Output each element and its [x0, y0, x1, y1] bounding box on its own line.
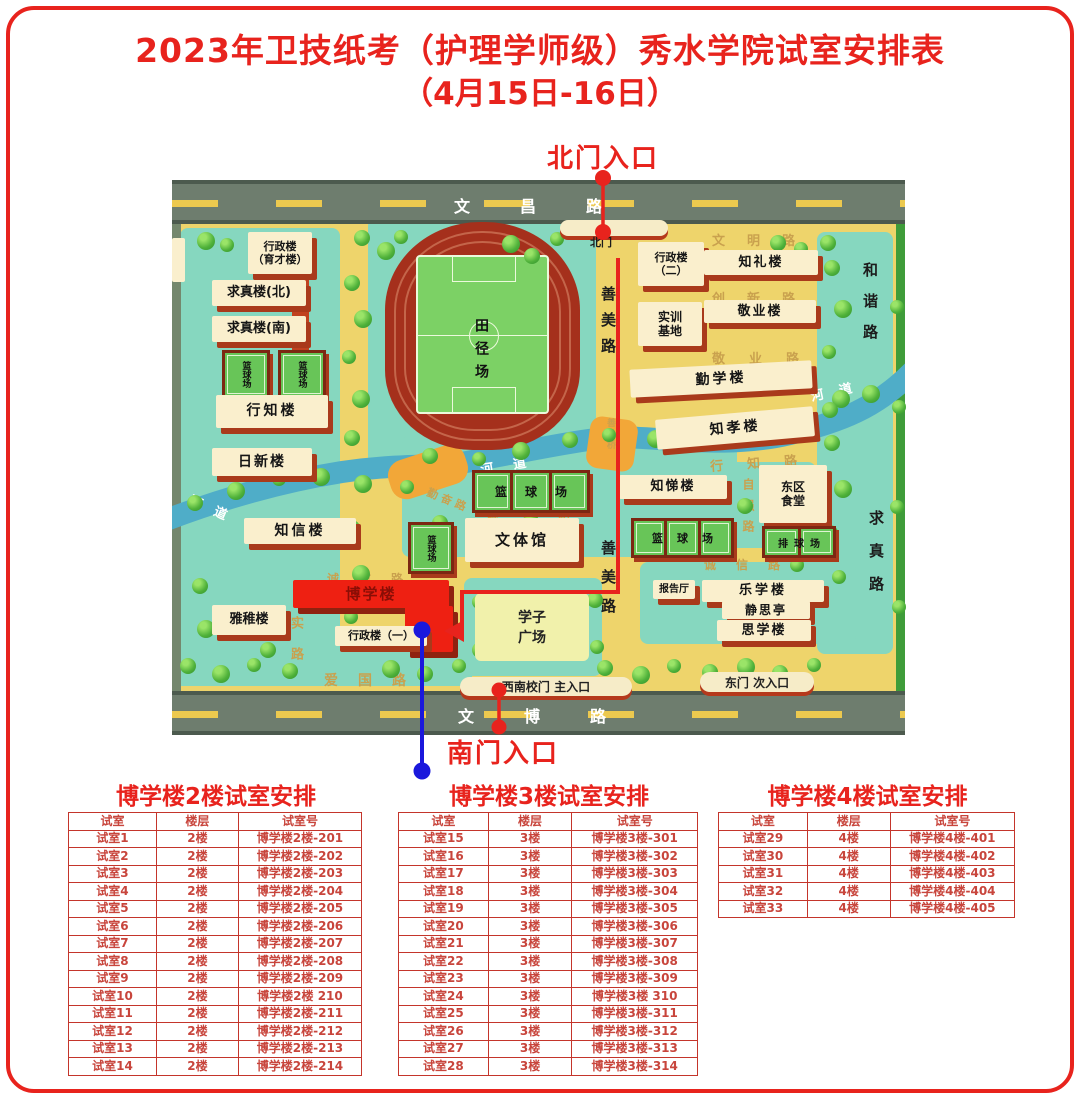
table-cell: 3楼	[488, 830, 572, 848]
col-header-floor: 楼层	[488, 813, 572, 831]
table-cell: 2楼	[156, 883, 238, 901]
tree-icon	[417, 666, 433, 682]
tree-icon	[824, 435, 840, 451]
table-cell: 2楼	[156, 848, 238, 866]
table-cell: 2楼	[156, 1023, 238, 1041]
table-cell: 博学楼2楼-213	[238, 1040, 361, 1058]
table-row: 试室213楼博学楼3楼-307	[399, 935, 698, 953]
tree-icon	[192, 578, 208, 594]
table-cell: 博学楼3楼 310	[572, 988, 698, 1006]
table-row: 试室122楼博学楼2楼-212	[69, 1023, 362, 1041]
table-cell: 2楼	[156, 1058, 238, 1076]
building-boxue-highlight: 博学楼	[293, 580, 449, 608]
table-cell: 2楼	[156, 1005, 238, 1023]
table-row: 试室283楼博学楼3楼-314	[399, 1058, 698, 1076]
tree-icon	[602, 428, 616, 442]
table-row: 试室102楼博学楼2楼 210	[69, 988, 362, 1006]
table-row: 试室163楼博学楼3楼-302	[399, 848, 698, 866]
table-cell: 博学楼3楼-311	[572, 1005, 698, 1023]
table-cell: 博学楼4楼-403	[890, 865, 1014, 883]
tree-icon	[212, 665, 230, 683]
tree-icon	[524, 248, 540, 264]
volleyball-court: 排球场	[762, 526, 836, 558]
col-header-room: 试室	[719, 813, 808, 831]
table-cell: 4楼	[807, 900, 890, 918]
table-title-floor4: 博学楼4楼试室安排	[720, 777, 1015, 811]
tree-icon	[512, 442, 530, 460]
south-entrance-label: 南门入口	[443, 733, 563, 770]
table-cell: 试室17	[399, 865, 489, 883]
table-cell: 3楼	[488, 953, 572, 971]
tree-icon	[834, 480, 852, 498]
basketball-courts: 篮球场	[472, 470, 590, 513]
tree-icon	[502, 235, 520, 253]
table-cell: 试室16	[399, 848, 489, 866]
table-cell: 4楼	[807, 830, 890, 848]
table-row: 试室203楼博学楼3楼-306	[399, 918, 698, 936]
table-cell: 2楼	[156, 935, 238, 953]
table-cell: 试室9	[69, 970, 157, 988]
table-cell: 博学楼2楼-208	[238, 953, 361, 971]
table-cell: 3楼	[488, 935, 572, 953]
tree-icon	[667, 659, 681, 673]
table-cell: 试室30	[719, 848, 808, 866]
col-header-roomno: 试室号	[238, 813, 361, 831]
table-cell: 博学楼4楼-404	[890, 883, 1014, 901]
tree-icon	[227, 482, 245, 500]
building-yucai: 行政楼 （育才楼）	[248, 232, 312, 274]
court-label: 篮球场	[225, 353, 267, 396]
east-gate: 东门 次入口	[700, 672, 814, 692]
poster-page: { "title": { "line1": "2023年卫技纸考（护理学师级）秀…	[0, 0, 1080, 1099]
table-title-floor3: 博学楼3楼试室安排	[400, 777, 698, 811]
table-cell: 博学楼4楼-401	[890, 830, 1014, 848]
basketball-courts-east: 篮球场	[631, 518, 734, 558]
tree-icon	[824, 260, 840, 276]
tree-icon	[790, 558, 804, 572]
exam-room-table-floor4: 试室 楼层 试室号 试室294楼博学楼4楼-401试室304楼博学楼4楼-402…	[718, 812, 1015, 918]
tree-icon	[187, 495, 203, 511]
building-sixue: 思学楼	[717, 620, 811, 641]
table-cell: 2楼	[156, 970, 238, 988]
table-cell: 2楼	[156, 865, 238, 883]
table-cell: 试室5	[69, 900, 157, 918]
table-row: 试室223楼博学楼3楼-308	[399, 953, 698, 971]
table-cell: 博学楼2楼-207	[238, 935, 361, 953]
north-entrance-label: 北门入口	[543, 138, 663, 175]
table-row: 试室294楼博学楼4楼-401	[719, 830, 1015, 848]
tree-icon	[180, 658, 196, 674]
table-row: 试室42楼博学楼2楼-204	[69, 883, 362, 901]
table-row: 试室334楼博学楼4楼-405	[719, 900, 1015, 918]
tree-icon	[452, 659, 466, 673]
tree-icon	[400, 480, 414, 494]
basketball-court: 篮球场	[222, 350, 270, 399]
table-cell: 试室14	[69, 1058, 157, 1076]
tree-icon	[822, 345, 836, 359]
road-label-qiuzhen: 求真路	[866, 510, 887, 609]
table-cell: 博学楼3楼-312	[572, 1023, 698, 1041]
table-cell: 试室11	[69, 1005, 157, 1023]
table-cell: 3楼	[488, 918, 572, 936]
table-cell: 4楼	[807, 848, 890, 866]
tree-icon	[590, 640, 604, 654]
tree-icon	[632, 666, 650, 684]
table-row: 试室52楼博学楼2楼-205	[69, 900, 362, 918]
xuezi-plaza: 学子 广场	[475, 593, 589, 661]
court-label: 篮球场	[281, 353, 323, 396]
table-row: 试室142楼博学楼2楼-214	[69, 1058, 362, 1076]
building-zhili: 知礼楼	[704, 250, 818, 275]
building-baogaoting: 报告厅	[653, 580, 695, 599]
table-cell: 2楼	[156, 830, 238, 848]
table-row: 试室132楼博学楼2楼-213	[69, 1040, 362, 1058]
table-row: 试室314楼博学楼4楼-403	[719, 865, 1015, 883]
table-cell: 博学楼3楼-309	[572, 970, 698, 988]
road-label-aiguo: 爱国路	[324, 670, 426, 690]
table-cell: 试室15	[399, 830, 489, 848]
table-cell: 博学楼3楼-302	[572, 848, 698, 866]
table-cell: 试室8	[69, 953, 157, 971]
table-cell: 试室12	[69, 1023, 157, 1041]
table-cell: 博学楼2楼-202	[238, 848, 361, 866]
table-title-floor2: 博学楼2楼试室安排	[70, 777, 362, 811]
tree-icon	[832, 570, 846, 584]
table-cell: 博学楼2楼-209	[238, 970, 361, 988]
table-row: 试室324楼博学楼4楼-404	[719, 883, 1015, 901]
building-zhiti: 知悌楼	[619, 475, 727, 499]
tree-icon	[247, 658, 261, 672]
table-cell: 试室22	[399, 953, 489, 971]
building-jingsiting: 静思亭	[722, 601, 810, 619]
southwest-gate: 西南校门 主入口	[460, 677, 632, 696]
tree-icon	[344, 430, 360, 446]
table-cell: 博学楼3楼-303	[572, 865, 698, 883]
tree-icon	[260, 642, 276, 658]
road-label-shanmei-lower: 善美路	[598, 540, 619, 627]
table-row: 试室32楼博学楼2楼-203	[69, 865, 362, 883]
table-cell: 3楼	[488, 865, 572, 883]
table-cell: 试室25	[399, 1005, 489, 1023]
building-xingzheng2: 行政楼 （二）	[638, 242, 704, 286]
table-row: 试室92楼博学楼2楼-209	[69, 970, 362, 988]
road-label-wenbo: 文博路	[458, 703, 656, 727]
table-cell: 试室1	[69, 830, 157, 848]
tree-icon	[820, 235, 836, 251]
building-dongqu: 东区 食堂	[759, 465, 827, 523]
table-cell: 试室26	[399, 1023, 489, 1041]
road-label-hexie: 和谐路	[860, 262, 881, 355]
road-label-chengxin-east: 诚信路	[704, 556, 800, 573]
table-cell: 试室18	[399, 883, 489, 901]
table-cell: 2楼	[156, 988, 238, 1006]
building-shixun: 实训 基地	[638, 302, 702, 346]
tree-icon	[890, 500, 904, 514]
table-row: 试室273楼博学楼3楼-313	[399, 1040, 698, 1058]
table-row: 试室233楼博学楼3楼-309	[399, 970, 698, 988]
table-cell: 3楼	[488, 970, 572, 988]
tree-icon	[890, 300, 904, 314]
table-header-row: 试室 楼层 试室号	[399, 813, 698, 831]
table-cell: 博学楼2楼-214	[238, 1058, 361, 1076]
tree-icon	[770, 235, 786, 251]
table-cell: 3楼	[488, 848, 572, 866]
tree-icon	[282, 663, 298, 679]
table-cell: 3楼	[488, 900, 572, 918]
table-row: 试室72楼博学楼2楼-207	[69, 935, 362, 953]
table-row: 试室183楼博学楼3楼-304	[399, 883, 698, 901]
table-row: 试室304楼博学楼4楼-402	[719, 848, 1015, 866]
table-cell: 博学楼2楼 210	[238, 988, 361, 1006]
table-cell: 2楼	[156, 918, 238, 936]
table-cell: 博学楼2楼-206	[238, 918, 361, 936]
court-label: 排球场	[765, 529, 833, 555]
north-gate-pill	[560, 220, 668, 236]
table-cell: 试室29	[719, 830, 808, 848]
building-jingye: 敬业楼	[704, 300, 816, 323]
table-cell: 试室21	[399, 935, 489, 953]
court-label: 篮球场	[634, 521, 731, 555]
table-cell: 试室4	[69, 883, 157, 901]
poster-subtitle: （4月15日-16日）	[0, 68, 1080, 113]
tree-icon	[344, 275, 360, 291]
table-cell: 博学楼2楼-212	[238, 1023, 361, 1041]
table-cell: 博学楼4楼-405	[890, 900, 1014, 918]
building-xingzhi: 行知楼	[216, 395, 328, 428]
tree-icon	[354, 310, 372, 328]
table-row: 试室243楼博学楼3楼 310	[399, 988, 698, 1006]
table-row: 试室12楼博学楼2楼-201	[69, 830, 362, 848]
exam-room-table-floor3: 试室 楼层 试室号 试室153楼博学楼3楼-301试室163楼博学楼3楼-302…	[398, 812, 698, 1076]
tree-icon	[394, 230, 408, 244]
col-header-room: 试室	[69, 813, 157, 831]
building-qiuzhen-north: 求真楼(北)	[212, 280, 306, 306]
tree-icon	[562, 432, 578, 448]
tree-icon	[892, 600, 906, 614]
table-cell: 试室28	[399, 1058, 489, 1076]
table-cell: 博学楼3楼-301	[572, 830, 698, 848]
table-cell: 博学楼2楼-204	[238, 883, 361, 901]
table-cell: 试室32	[719, 883, 808, 901]
tree-icon	[220, 238, 234, 252]
table-cell: 3楼	[488, 1058, 572, 1076]
tree-icon	[377, 242, 395, 260]
campus-map: 文昌路 文博路 文明路 创新路 敬业路 和谐路 求真路 善美路 善美路 自强路 …	[172, 180, 905, 735]
building-xingzheng1: 行政楼（一）	[335, 626, 427, 646]
table-cell: 博学楼2楼-211	[238, 1005, 361, 1023]
table-cell: 试室6	[69, 918, 157, 936]
exam-room-table-floor2: 试室 楼层 试室号 试室12楼博学楼2楼-201试室22楼博学楼2楼-202试室…	[68, 812, 362, 1076]
building-lexue: 乐学楼	[702, 580, 824, 602]
col-header-floor: 楼层	[156, 813, 238, 831]
table-cell: 博学楼2楼-205	[238, 900, 361, 918]
table-row: 试室82楼博学楼2楼-208	[69, 953, 362, 971]
table-cell: 博学楼3楼-313	[572, 1040, 698, 1058]
col-header-roomno: 试室号	[572, 813, 698, 831]
tree-icon	[862, 385, 880, 403]
table-section-floor3: 试室 楼层 试室号 试室153楼博学楼3楼-301试室163楼博学楼3楼-302…	[398, 812, 698, 1076]
building-zhixin: 知信楼	[244, 518, 356, 544]
table-cell: 2楼	[156, 953, 238, 971]
track-label: 田径场	[471, 318, 491, 387]
table-cell: 试室27	[399, 1040, 489, 1058]
table-cell: 3楼	[488, 1040, 572, 1058]
table-cell: 博学楼4楼-402	[890, 848, 1014, 866]
basketball-court: 篮球场	[278, 350, 326, 399]
north-gate-label: 北门	[590, 234, 612, 250]
table-row: 试室22楼博学楼2楼-202	[69, 848, 362, 866]
tree-icon	[382, 660, 400, 678]
tree-icon	[197, 232, 215, 250]
table-cell: 3楼	[488, 883, 572, 901]
building-wentiguan: 文体馆	[465, 518, 579, 562]
table-cell: 2楼	[156, 900, 238, 918]
table-cell: 试室10	[69, 988, 157, 1006]
field-box	[452, 257, 516, 282]
court-label: 篮球场	[475, 473, 587, 510]
table-cell: 博学楼2楼-203	[238, 865, 361, 883]
table-cell: 博学楼3楼-314	[572, 1058, 698, 1076]
tree-icon	[344, 610, 358, 624]
table-cell: 试室2	[69, 848, 157, 866]
table-cell: 试室19	[399, 900, 489, 918]
table-row: 试室193楼博学楼3楼-305	[399, 900, 698, 918]
building-yazhi: 雅稚楼	[212, 605, 286, 635]
tree-icon	[834, 300, 852, 318]
field-box	[452, 387, 516, 412]
tree-icon	[312, 468, 330, 486]
table-cell: 博学楼3楼-307	[572, 935, 698, 953]
table-cell: 博学楼3楼-304	[572, 883, 698, 901]
table-cell: 博学楼3楼-308	[572, 953, 698, 971]
tree-icon	[354, 475, 372, 493]
table-cell: 博学楼3楼-305	[572, 900, 698, 918]
poster-title: 2023年卫技纸考（护理学师级）秀水学院试室安排表	[0, 24, 1080, 72]
table-section-floor4: 试室 楼层 试室号 试室294楼博学楼4楼-401试室304楼博学楼4楼-402…	[718, 812, 1015, 918]
building-fragment	[172, 238, 185, 282]
table-cell: 试室7	[69, 935, 157, 953]
table-cell: 试室3	[69, 865, 157, 883]
table-row: 试室173楼博学楼3楼-303	[399, 865, 698, 883]
tree-icon	[892, 400, 906, 414]
tree-icon	[422, 448, 438, 464]
court-label: 篮球场	[411, 525, 451, 571]
road-label-shanmei-upper: 善美路	[598, 286, 619, 364]
tree-icon	[807, 658, 821, 672]
table-row: 试室62楼博学楼2楼-206	[69, 918, 362, 936]
tree-icon	[587, 592, 603, 608]
table-cell: 试室23	[399, 970, 489, 988]
tree-icon	[342, 350, 356, 364]
tree-icon	[597, 660, 613, 676]
table-cell: 试室33	[719, 900, 808, 918]
table-row: 试室153楼博学楼3楼-301	[399, 830, 698, 848]
table-cell: 试室31	[719, 865, 808, 883]
tree-icon	[822, 402, 838, 418]
table-cell: 3楼	[488, 1005, 572, 1023]
table-section-floor2: 试室 楼层 试室号 试室12楼博学楼2楼-201试室22楼博学楼2楼-202试室…	[68, 812, 362, 1076]
road-label-wenchang: 文昌路	[454, 193, 652, 217]
basketball-court: 篮球场	[408, 522, 454, 574]
table-header-row: 试室 楼层 试室号	[719, 813, 1015, 831]
table-cell: 3楼	[488, 988, 572, 1006]
table-row: 试室263楼博学楼3楼-312	[399, 1023, 698, 1041]
table-cell: 试室13	[69, 1040, 157, 1058]
table-cell: 3楼	[488, 1023, 572, 1041]
table-cell: 博学楼3楼-306	[572, 918, 698, 936]
table-header-row: 试室 楼层 试室号	[69, 813, 362, 831]
building-rixin: 日新楼	[212, 448, 312, 476]
table-row: 试室253楼博学楼3楼-311	[399, 1005, 698, 1023]
col-header-roomno: 试室号	[890, 813, 1014, 831]
table-cell: 2楼	[156, 1040, 238, 1058]
table-cell: 试室20	[399, 918, 489, 936]
table-cell: 试室24	[399, 988, 489, 1006]
tree-icon	[472, 452, 486, 466]
table-cell: 博学楼2楼-201	[238, 830, 361, 848]
tree-icon	[354, 230, 370, 246]
athletics-track: 田径场	[385, 222, 580, 450]
col-header-room: 试室	[399, 813, 489, 831]
col-header-floor: 楼层	[807, 813, 890, 831]
table-cell: 4楼	[807, 883, 890, 901]
tree-icon	[352, 390, 370, 408]
building-qiuzhen-south: 求真楼(南)	[212, 316, 306, 342]
tree-icon	[737, 498, 753, 514]
table-row: 试室112楼博学楼2楼-211	[69, 1005, 362, 1023]
table-cell: 4楼	[807, 865, 890, 883]
